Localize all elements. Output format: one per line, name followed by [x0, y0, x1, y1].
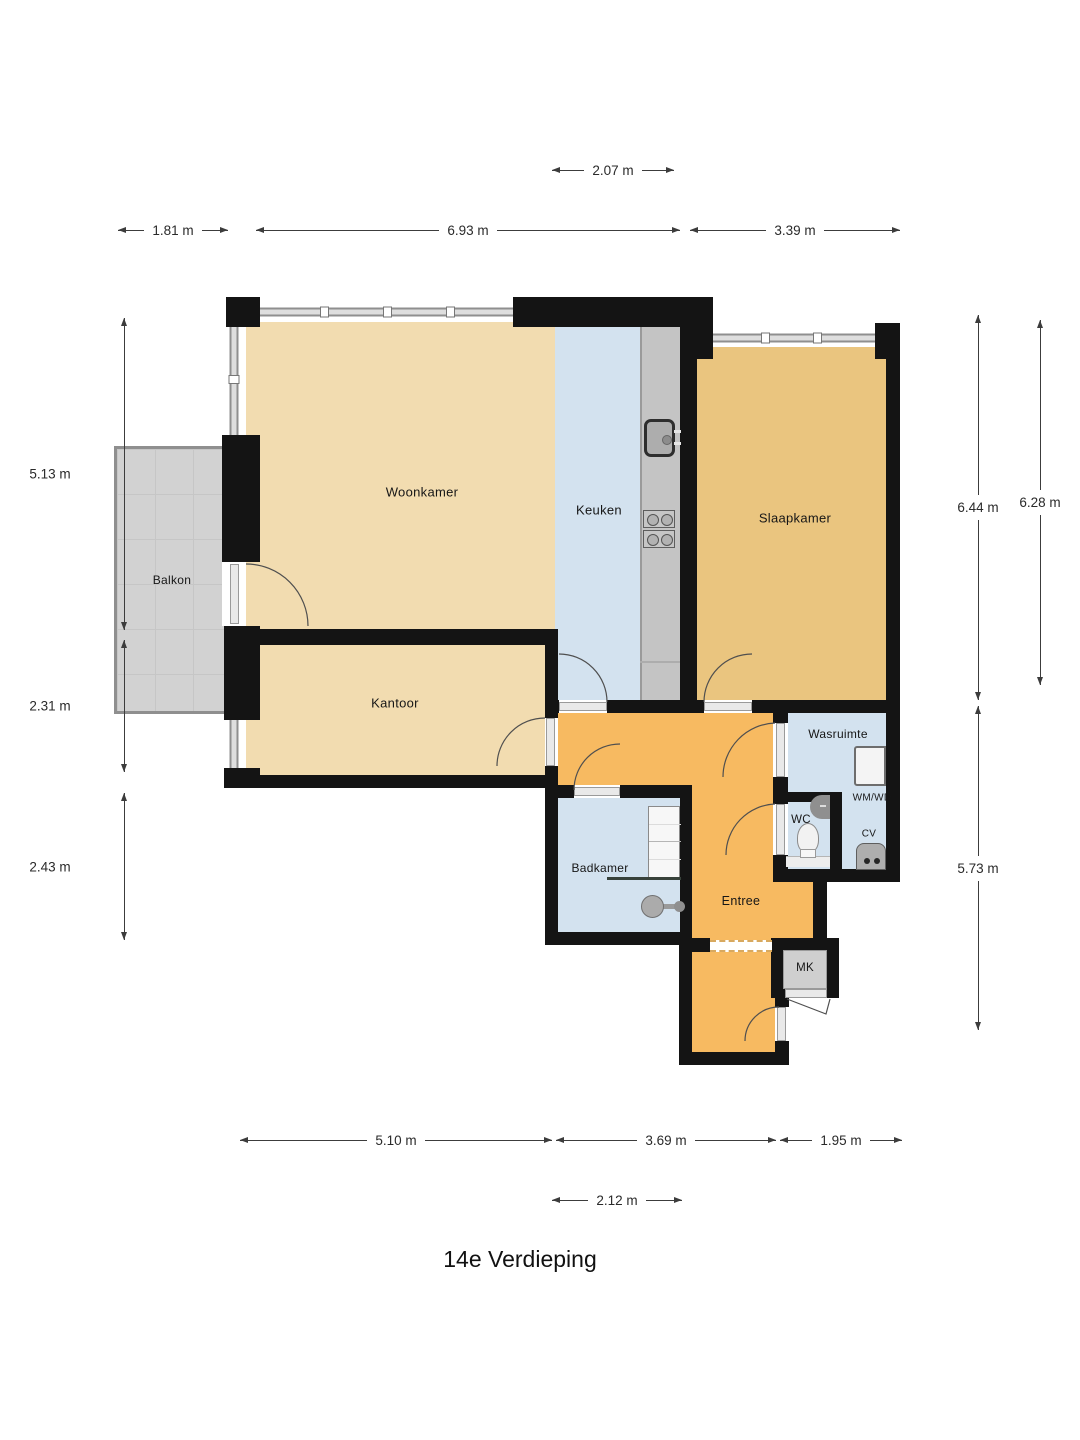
wall-segment [886, 345, 900, 715]
wall-segment [679, 1052, 789, 1065]
window-glass [713, 334, 875, 343]
burner-icon [647, 514, 659, 526]
dim-line [552, 170, 584, 171]
wall-segment [545, 788, 558, 945]
kantoor-door [546, 718, 555, 766]
window [222, 720, 246, 768]
toilet-tank [800, 849, 816, 858]
dim-bottom-center: 2.12 m [552, 1192, 682, 1208]
counter-divider [640, 661, 680, 663]
wall-segment [692, 938, 710, 952]
dim-line [556, 1140, 637, 1141]
label-wc: WC [791, 814, 811, 826]
label-slaapkamer: Slaapkamer [759, 511, 831, 526]
wall-segment [226, 775, 558, 788]
dim-line [552, 1200, 588, 1201]
label-kantoor: Kantoor [371, 696, 419, 711]
label-woonkamer: Woonkamer [386, 485, 459, 500]
badkamer-door [574, 787, 620, 796]
dim-label: 2.07 m [584, 163, 641, 178]
dim-label: 5.73 m [957, 856, 998, 881]
wall-segment [680, 327, 697, 713]
burner-icon [661, 534, 673, 546]
label-cv: CV [862, 829, 877, 840]
dim-label: 3.69 m [637, 1133, 694, 1148]
wall-segment [558, 785, 574, 798]
window-mullion [320, 306, 329, 317]
dim-label: 6.44 m [957, 495, 998, 520]
cv-dot [864, 858, 870, 864]
corner-sink-icon [810, 795, 830, 819]
wall-segment [222, 435, 260, 562]
cabinet-shelf [649, 859, 681, 860]
sink-handle-icon [674, 430, 681, 433]
mk-door [785, 989, 827, 998]
window-mullion [761, 333, 770, 344]
window [713, 329, 875, 347]
wall-segment [513, 297, 695, 327]
dim-line [978, 520, 979, 700]
dim-line [978, 881, 979, 1031]
cabinet-shelf [649, 841, 681, 842]
washing-machine-icon [854, 746, 886, 786]
entree-extension [775, 882, 815, 939]
label-balkon: Balkon [153, 573, 192, 587]
dim-top-right: 3.39 m [690, 222, 900, 238]
room-kantoor [246, 645, 545, 776]
dim-right-inner: 6.28 m [1012, 320, 1068, 685]
dim-line [695, 1140, 776, 1141]
wall-segment [545, 932, 692, 945]
wall-segment [680, 785, 692, 945]
vestibule [692, 939, 775, 1054]
dim-right-lower: 5.73 m [950, 706, 1006, 1030]
window-mullion [446, 306, 455, 317]
dim-line [118, 230, 144, 231]
dim-line [642, 170, 674, 171]
cv-dot [874, 858, 880, 864]
dim-line [646, 1200, 682, 1201]
wall-segment [775, 1041, 789, 1065]
cv-boiler-icon [856, 843, 886, 870]
window-glass [230, 720, 239, 768]
dim-label: 1.81 m [144, 223, 201, 238]
window [222, 327, 246, 435]
label-wm-wd: WM/WD [853, 793, 892, 804]
dim-label: 5.13 m [10, 467, 90, 482]
wc-door [776, 804, 785, 855]
slaapkamer-door [704, 702, 752, 711]
room-woonkamer [246, 321, 555, 631]
burner-icon [661, 514, 673, 526]
floorplan-canvas: Woonkamer Keuken Slaapkamer Kantoor Balk… [0, 0, 1080, 1440]
dim-line [1040, 515, 1041, 685]
dim-line [870, 1140, 902, 1141]
burner-icon [647, 534, 659, 546]
window-mullion [229, 375, 240, 384]
sink-drain-icon [662, 435, 672, 445]
dim-label: 6.28 m [1019, 490, 1060, 515]
label-mk: MK [796, 962, 814, 974]
dim-label: 3.39 m [766, 223, 823, 238]
wall-segment [752, 700, 898, 713]
dim-line [202, 230, 228, 231]
dim-right-outer: 6.44 m [950, 315, 1006, 700]
stove-top-icon [643, 510, 675, 528]
dim-left-upper: 5.13 m [10, 318, 125, 630]
window-mullion [813, 333, 822, 344]
dim-left-middle: 2.31 m [10, 640, 125, 772]
front-door [777, 1007, 786, 1041]
dim-label: 6.93 m [439, 223, 496, 238]
dim-line [124, 793, 125, 940]
kitchen-sink-icon [644, 419, 675, 457]
keuken-door [559, 702, 607, 711]
bathroom-cabinet-icon [648, 806, 680, 878]
dim-bottom-right: 1.95 m [780, 1132, 902, 1148]
label-wasruimte: Wasruimte [808, 727, 868, 741]
bath-edge-line [607, 877, 681, 880]
dim-line [124, 640, 125, 772]
dim-line [780, 1140, 812, 1141]
dim-line [497, 230, 680, 231]
dim-line [124, 318, 125, 630]
label-keuken: Keuken [576, 503, 622, 518]
dim-bottom-middle: 3.69 m [556, 1132, 776, 1148]
window-mullion [383, 306, 392, 317]
dim-label: 2.12 m [588, 1193, 645, 1208]
dim-label: 5.10 m [367, 1133, 424, 1148]
dim-line [1040, 320, 1041, 490]
sink-handle-icon [674, 442, 681, 445]
entree-threshold-dashed [710, 940, 772, 952]
wall-segment [226, 297, 260, 327]
dim-top-left: 1.81 m [118, 222, 228, 238]
door-leaf-mk-open [787, 999, 830, 1014]
washbasin-icon [641, 895, 664, 918]
dim-top-center: 2.07 m [552, 162, 674, 178]
floor-title: 14e Verdieping [360, 1246, 680, 1273]
dim-line [978, 315, 979, 495]
wall-segment [830, 792, 842, 870]
wall-segment [813, 877, 827, 940]
dim-bottom-left: 5.10 m [240, 1132, 552, 1148]
wall-segment [607, 700, 704, 713]
window [260, 301, 513, 322]
dim-label: 2.43 m [10, 859, 90, 874]
washbasin-tap-icon [674, 901, 685, 912]
wall-segment [246, 629, 558, 645]
dim-line [690, 230, 766, 231]
dim-line [978, 706, 979, 856]
wasruimte-door [776, 723, 785, 777]
balcony-door [230, 564, 239, 624]
dim-line [824, 230, 900, 231]
dim-line [240, 1140, 367, 1141]
wall-segment [695, 297, 713, 359]
wall-segment [545, 700, 559, 713]
dim-line [256, 230, 439, 231]
cabinet-shelf [649, 824, 681, 825]
wall-segment [773, 869, 900, 882]
wall-segment [773, 713, 788, 723]
dim-label: 2.31 m [10, 699, 90, 714]
label-badkamer: Badkamer [571, 861, 628, 875]
sink-tap [820, 805, 826, 807]
dim-left-lower: 2.43 m [10, 793, 125, 940]
dim-line [425, 1140, 552, 1141]
hall-strip [558, 713, 692, 785]
label-entree: Entree [722, 894, 761, 908]
wall-segment [679, 938, 692, 1065]
dim-label: 1.95 m [812, 1133, 869, 1148]
stove-bottom-icon [643, 530, 675, 548]
dim-top-middle: 6.93 m [256, 222, 680, 238]
